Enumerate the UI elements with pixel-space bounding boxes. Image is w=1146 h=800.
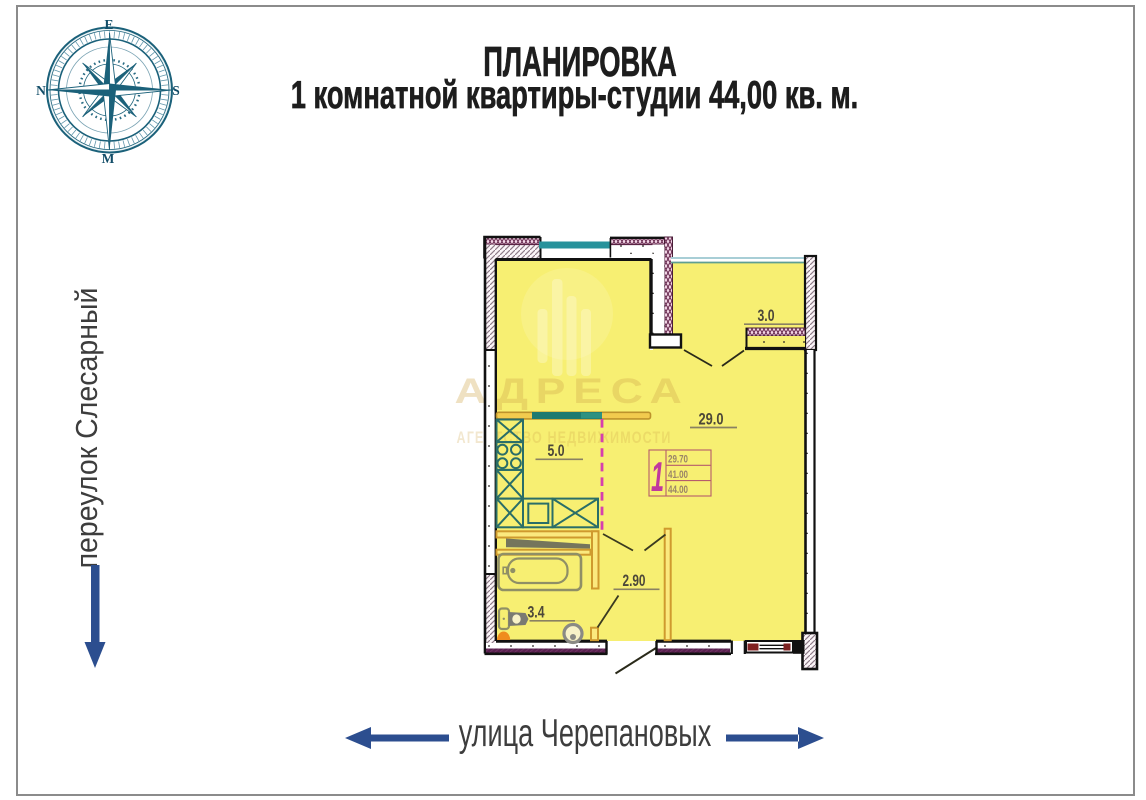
svg-text:E: E [104, 17, 113, 32]
svg-text:1: 1 [651, 453, 664, 500]
svg-text:44.00: 44.00 [668, 484, 688, 496]
svg-text:41.00: 41.00 [668, 469, 688, 481]
svg-text:S: S [172, 83, 180, 98]
svg-text:29.70: 29.70 [668, 454, 688, 466]
svg-text:2.90: 2.90 [623, 571, 646, 590]
svg-text:3.0: 3.0 [758, 306, 775, 325]
svg-text:M: M [102, 151, 115, 166]
svg-text:N: N [36, 83, 46, 98]
svg-text:29.0: 29.0 [699, 410, 724, 429]
svg-text:3.4: 3.4 [528, 603, 545, 622]
svg-text:5.0: 5.0 [548, 441, 565, 460]
